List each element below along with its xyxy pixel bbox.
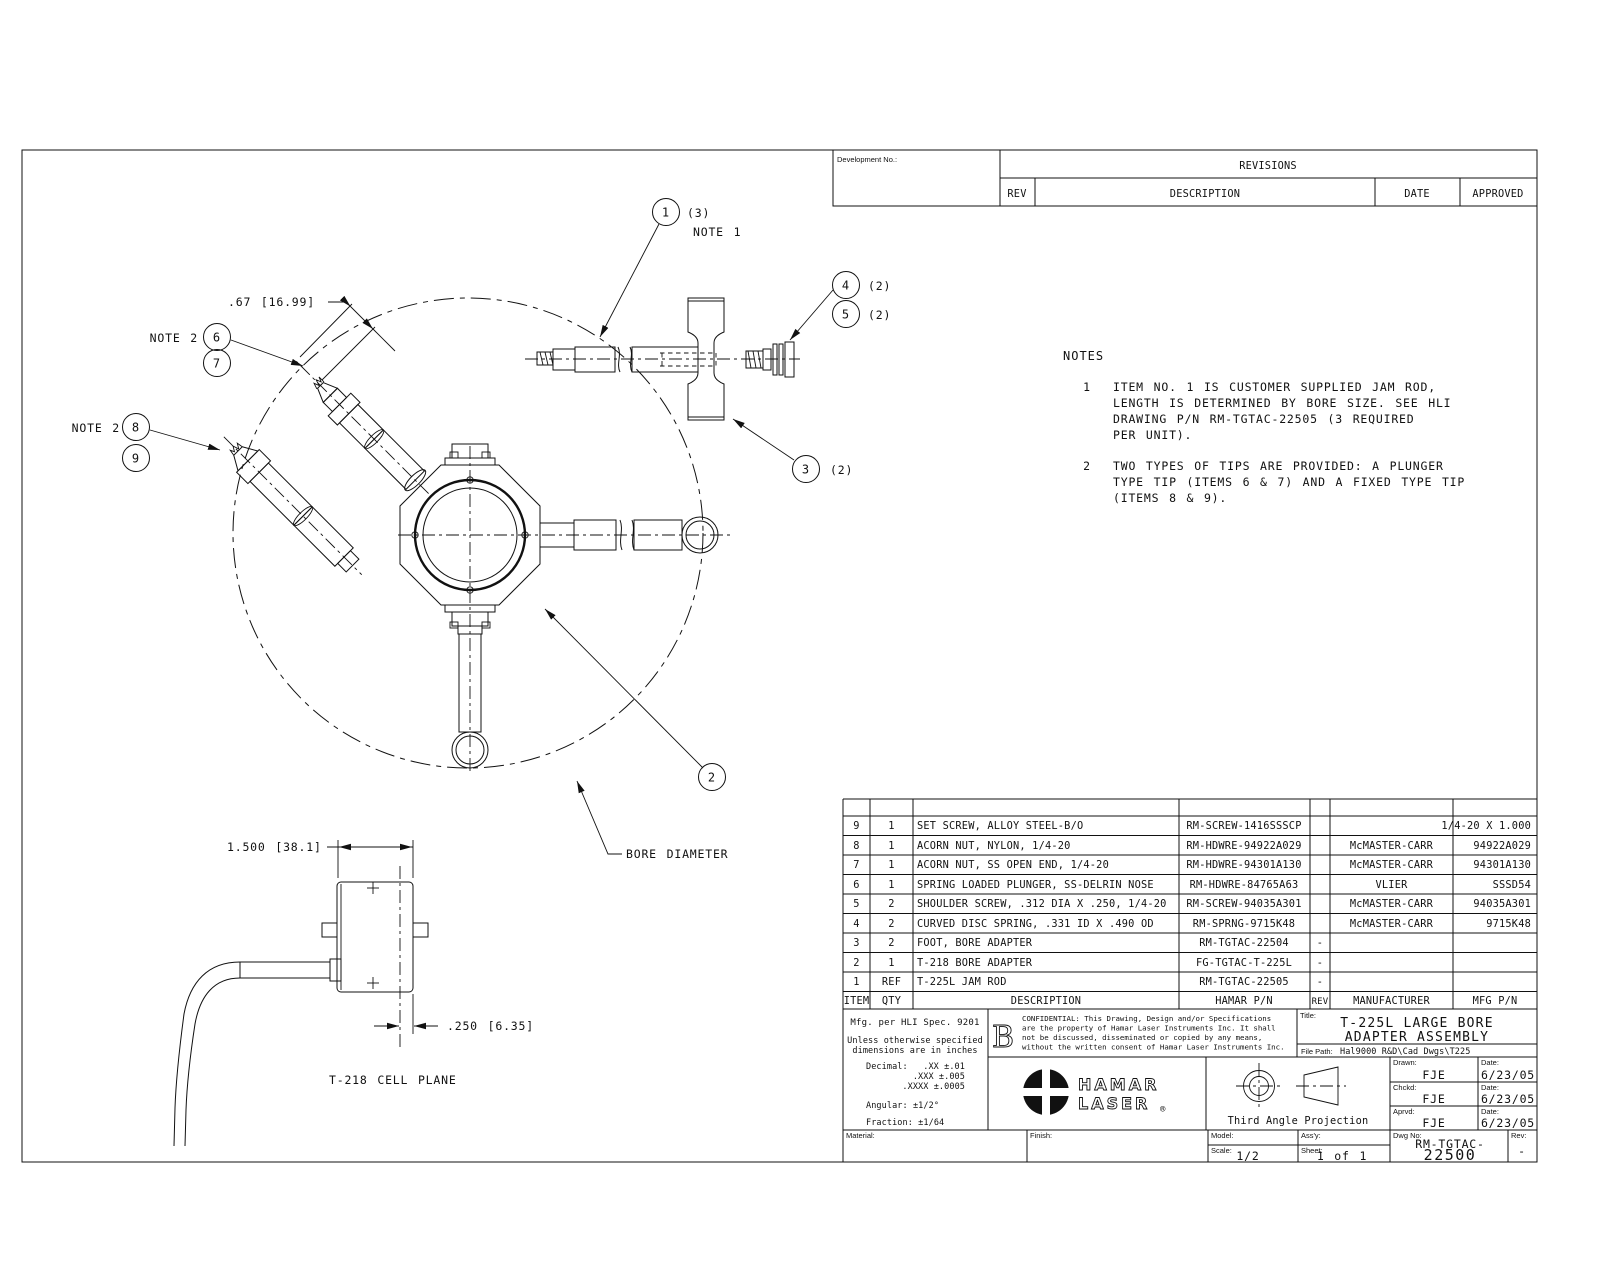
plunger-tip-rod (285, 350, 440, 505)
drawing-title-line1: T-225L LARGE BORE (1340, 1016, 1493, 1031)
aprvd-date-label: Date: (1481, 1107, 1499, 1116)
projection-label: Third Angle Projection (1228, 1115, 1369, 1127)
bom-row: 3 2 FOOT, BORE ADAPTER RM-TGTAC-22504 - (853, 937, 1323, 949)
balloon-9: 9 (132, 452, 140, 466)
bom-cell-item: 9 (853, 820, 859, 832)
tolerance-line2: dimensions are in inches (852, 1046, 977, 1056)
confidential-line3: not be discussed, disseminated or copied… (1022, 1033, 1262, 1042)
approved-col-header: APPROVED (1472, 188, 1523, 200)
bom-header-manufacturer: MANUFACTURER (1353, 995, 1430, 1007)
bom-cell-item: 6 (853, 879, 859, 891)
bom-header-item: ITEM (844, 995, 870, 1007)
logo-word-laser: LASER (1078, 1094, 1150, 1113)
bom-header-rev: REV (1312, 997, 1329, 1007)
description-col-header: DESCRIPTION (1170, 188, 1240, 200)
bom-cell-item: 8 (853, 840, 859, 852)
bom-cell-qty: 1 (888, 840, 894, 852)
decimal-xx: .XX ±.01 (923, 1062, 965, 1072)
bom-cell-hamar-pn: RM-SPRNG-9715K48 (1193, 918, 1295, 930)
confidential-line2: are the property of Hamar Laser Instrume… (1022, 1024, 1276, 1033)
material-label: Material: (846, 1131, 875, 1140)
bom-cell-item: 1 (853, 976, 859, 988)
balloon-2: 2 (708, 771, 716, 785)
drawn-date-value: 6/23/05 (1481, 1068, 1535, 1082)
confidential-box: B CONFIDENTIAL: This Drawing, Design and… (992, 1014, 1285, 1055)
file-path-value: Hal9000 R&D\Cad Dwgs\T225 (1340, 1047, 1470, 1057)
assy-label: Ass'y: (1301, 1131, 1321, 1140)
bom-cell-qty: 2 (888, 898, 894, 910)
note2-line2: TYPE TIP (ITEMS 6 & 7) AND A FIXED TYPE … (1113, 475, 1465, 489)
main-assembly-view: .67 [16.99] 1 (3) NOTE 1 4 (2) 5 (2) 3 (… (72, 199, 892, 862)
note1-line3: DRAWING P/N RM-TGTAC-22505 (3 REQUIRED (1113, 412, 1415, 426)
bom-cell-hamar-pn: FG-TGTAC-T-225L (1196, 957, 1292, 969)
note1-line2: LENGTH IS DETERMINED BY BORE SIZE. SEE H… (1113, 396, 1451, 410)
scale-value: 1/2 (1236, 1149, 1259, 1163)
sensor-cable (174, 962, 240, 1146)
bom-cell-item: 7 (853, 859, 859, 871)
bom-cell-manufacturer: McMASTER-CARR (1350, 840, 1434, 852)
dwg-no-number: 22500 (1424, 1146, 1477, 1164)
bom-row: 6 1 SPRING LOADED PLUNGER, SS-DELRIN NOS… (853, 879, 1531, 891)
angular-tolerance: Angular: ±1/2° (866, 1101, 939, 1111)
cad-drawing: Development No.: REVISIONS REV DESCRIPTI… (0, 0, 1600, 1280)
bom-cell-manufacturer: VLIER (1376, 879, 1409, 891)
bom-header-description: DESCRIPTION (1011, 995, 1081, 1007)
bom-header-hamar-pn: HAMAR P/N (1215, 995, 1273, 1007)
chckd-label: Chckd: (1393, 1083, 1416, 1092)
balloon-1-qty: (3) (687, 206, 710, 220)
chckd-date-label: Date: (1481, 1083, 1499, 1092)
bom-cell-mfg-pn: 94301A130 (1473, 859, 1531, 871)
chckd-value: FJE (1422, 1092, 1445, 1106)
balloon-8: 8 (132, 421, 140, 435)
bore-diameter-label: BORE DIAMETER (626, 847, 728, 861)
tolerance-line1: Unless otherwise specified (847, 1036, 983, 1046)
bom-cell-hamar-pn: RM-TGTAC-22504 (1199, 937, 1289, 949)
drawing-title-line2: ADAPTER ASSEMBLY (1345, 1030, 1489, 1045)
bom-cell-qty: 1 (888, 820, 894, 832)
bom-cell-description: ACORN NUT, NYLON, 1/4-20 (917, 840, 1071, 852)
fraction-tolerance: Fraction: ±1/64 (866, 1118, 944, 1128)
note2-ref-plunger: NOTE 2 (150, 331, 198, 345)
aprvd-value: FJE (1422, 1116, 1445, 1130)
tip-dimension: .67 [16.99] (228, 295, 395, 380)
balloon-7: 7 (213, 357, 221, 371)
balloon-6: 6 (213, 331, 221, 345)
registered-mark: ® (1160, 1105, 1166, 1115)
bom-cell-hamar-pn: RM-HDWRE-84765A63 (1190, 879, 1299, 891)
bom-row: 4 2 CURVED DISC SPRING, .331 ID X .490 O… (853, 918, 1531, 930)
bom-cell-qty: 1 (888, 957, 894, 969)
bom-cell-mfg-pn: 94035A301 (1473, 898, 1531, 910)
confidential-line4: without the written consent of Hamar Las… (1022, 1043, 1285, 1052)
chckd-date-value: 6/23/05 (1481, 1092, 1535, 1106)
rev-value: - (1518, 1144, 1526, 1158)
mfg-spec: Mfg. per HLI Spec. 9201 (850, 1018, 979, 1028)
title-block: Mfg. per HLI Spec. 9201 Unless otherwise… (843, 1009, 1537, 1164)
model-label: Model: (1211, 1131, 1234, 1140)
drawn-label: Drawn: (1393, 1058, 1417, 1067)
bom-cell-item: 2 (853, 957, 859, 969)
bom-row: 8 1 ACORN NUT, NYLON, 1/4-20 RM-HDWRE-94… (853, 840, 1531, 852)
balloon-4-qty: (2) (868, 279, 891, 293)
drawing-sheet: Development No.: REVISIONS REV DESCRIPTI… (0, 0, 1600, 1280)
bom-cell-description: T-225L JAM ROD (917, 976, 1007, 988)
bom-cell-rev: - (1317, 976, 1323, 988)
bom-row: 2 1 T-218 BORE ADAPTER FG-TGTAC-T-225L - (853, 957, 1323, 969)
dim-offset-text: .250 [6.35] (447, 1019, 534, 1033)
bom-cell-manufacturer: McMASTER-CARR (1350, 918, 1434, 930)
balloon-3-qty: (2) (830, 463, 853, 477)
balloon-4: 4 (842, 279, 850, 293)
note2-number: 2 (1083, 459, 1091, 473)
b-stamp-icon: B (992, 1020, 1014, 1055)
bom-cell-hamar-pn: RM-HDWRE-94301A130 (1186, 859, 1301, 871)
balloon-5-qty: (2) (868, 308, 891, 322)
rev-col-header: REV (1007, 188, 1026, 200)
bom-cell-manufacturer: McMASTER-CARR (1350, 898, 1434, 910)
bom-cell-description: ACORN NUT, SS OPEN END, 1/4-20 (917, 859, 1109, 871)
drawn-date-label: Date: (1481, 1058, 1499, 1067)
bom-cell-qty: REF (882, 976, 901, 988)
note2-ref-fixed: NOTE 2 (72, 421, 120, 435)
third-angle-projection: Third Angle Projection (1228, 1063, 1369, 1127)
revisions-block: Development No.: REVISIONS REV DESCRIPTI… (833, 150, 1537, 206)
bom-cell-mfg-pn: 1/4-20 X 1.000 (1441, 820, 1531, 832)
cell-plane-label: T-218 CELL PLANE (329, 1073, 457, 1087)
balloon-1-note: NOTE 1 (693, 225, 741, 239)
bom-cell-hamar-pn: RM-SCREW-94035A301 (1186, 898, 1301, 910)
aprvd-label: Aprvd: (1393, 1107, 1415, 1116)
fixed-tip-rod (213, 426, 374, 587)
bom-cell-qty: 2 (888, 937, 894, 949)
bom-cell-manufacturer: McMASTER-CARR (1350, 859, 1434, 871)
note2-line3: (ITEMS 8 & 9). (1113, 491, 1227, 505)
balloon-callouts: 1 (3) NOTE 1 4 (2) 5 (2) 3 (2) 6 7 NOTE … (72, 199, 892, 862)
bom-cell-hamar-pn: RM-TGTAC-22505 (1199, 976, 1289, 988)
bom-header-qty: QTY (882, 995, 902, 1007)
bom-cell-rev: - (1317, 937, 1323, 949)
bom-cell-item: 3 (853, 937, 859, 949)
rev-label: Rev: (1511, 1131, 1526, 1140)
bom-cell-mfg-pn: 94922A029 (1473, 840, 1531, 852)
bom-cell-rev: - (1317, 957, 1323, 969)
logo-word-hamar: HAMAR (1078, 1075, 1159, 1094)
bom-header-mfg-pn: MFG P/N (1473, 995, 1518, 1007)
note1-number: 1 (1083, 380, 1091, 394)
tolerance-box: Mfg. per HLI Spec. 9201 Unless otherwise… (847, 1018, 983, 1128)
bom-cell-description: FOOT, BORE ADAPTER (917, 937, 1033, 949)
decimal-label: Decimal: (866, 1062, 908, 1072)
bom-cell-qty: 1 (888, 859, 894, 871)
development-no-label: Development No.: (837, 155, 897, 164)
balloon-5: 5 (842, 308, 850, 322)
bom-cell-description: T-218 BORE ADAPTER (917, 957, 1033, 969)
bom-cell-item: 4 (853, 918, 859, 930)
note1-line4: PER UNIT). (1113, 428, 1192, 442)
bom-row: 9 1 SET SCREW, ALLOY STEEL-B/O RM-SCREW-… (853, 820, 1531, 832)
bom-cell-description: SPRING LOADED PLUNGER, SS-DELRIN NOSE (917, 879, 1154, 891)
finish-label: Finish: (1030, 1131, 1052, 1140)
bom-row: 1 REF T-225L JAM ROD RM-TGTAC-22505 - (853, 976, 1323, 988)
bom-cell-qty: 1 (888, 879, 894, 891)
bom-row: 5 2 SHOULDER SCREW, .312 DIA X .250, 1/4… (853, 898, 1531, 910)
drawn-value: FJE (1422, 1068, 1445, 1082)
bom-table: ITEM QTY DESCRIPTION HAMAR P/N REV MANUF… (843, 799, 1537, 1009)
confidential-line1: CONFIDENTIAL: This Drawing, Design and/o… (1022, 1014, 1271, 1023)
note1-line1: ITEM NO. 1 IS CUSTOMER SUPPLIED JAM ROD, (1113, 380, 1436, 394)
bom-cell-qty: 2 (888, 918, 894, 930)
shoulder-screw (746, 342, 794, 377)
date-col-header: DATE (1404, 188, 1430, 200)
dim-width-text: 1.500 [38.1] (227, 840, 322, 854)
hamar-laser-logo: HAMAR LASER ® (1020, 1066, 1166, 1118)
bom-cell-hamar-pn: RM-SCREW-1416SSSCP (1186, 820, 1301, 832)
decimal-xxx: .XXX ±.005 (913, 1072, 965, 1082)
balloon-1: 1 (662, 206, 670, 220)
bom-cell-mfg-pn: 9715K48 (1486, 918, 1531, 930)
bom-cell-description: SHOULDER SCREW, .312 DIA X .250, 1/4-20 (917, 898, 1167, 910)
file-path-label: File Path: (1301, 1047, 1333, 1056)
bom-cell-item: 5 (853, 898, 859, 910)
note2-line1: TWO TYPES OF TIPS ARE PROVIDED: A PLUNGE… (1113, 459, 1444, 473)
balloon-3: 3 (802, 463, 810, 477)
aprvd-date-value: 6/23/05 (1481, 1116, 1535, 1130)
notes-title: NOTES (1063, 349, 1104, 363)
bom-cell-hamar-pn: RM-HDWRE-94922A029 (1186, 840, 1301, 852)
sheet-value: 1 of 1 (1317, 1149, 1367, 1163)
bom-cell-description: SET SCREW, ALLOY STEEL-B/O (917, 820, 1083, 832)
title-label: Title: (1300, 1011, 1316, 1020)
t218-side-view: 1.500 [38.1] .250 [6.35] T-218 CELL PLAN… (174, 840, 534, 1146)
decimal-xxxx: .XXXX ±.0005 (902, 1082, 965, 1092)
revisions-title: REVISIONS (1239, 160, 1297, 172)
notes-block: NOTES 1 ITEM NO. 1 IS CUSTOMER SUPPLIED … (1063, 349, 1465, 505)
bom-cell-mfg-pn: SSSD54 (1493, 879, 1531, 891)
bom-cell-description: CURVED DISC SPRING, .331 ID X .490 OD (917, 918, 1154, 930)
scale-label: Scale: (1211, 1146, 1232, 1155)
bom-row: 7 1 ACORN NUT, SS OPEN END, 1/4-20 RM-HD… (853, 859, 1531, 871)
dim-tip-text: .67 [16.99] (228, 295, 315, 309)
